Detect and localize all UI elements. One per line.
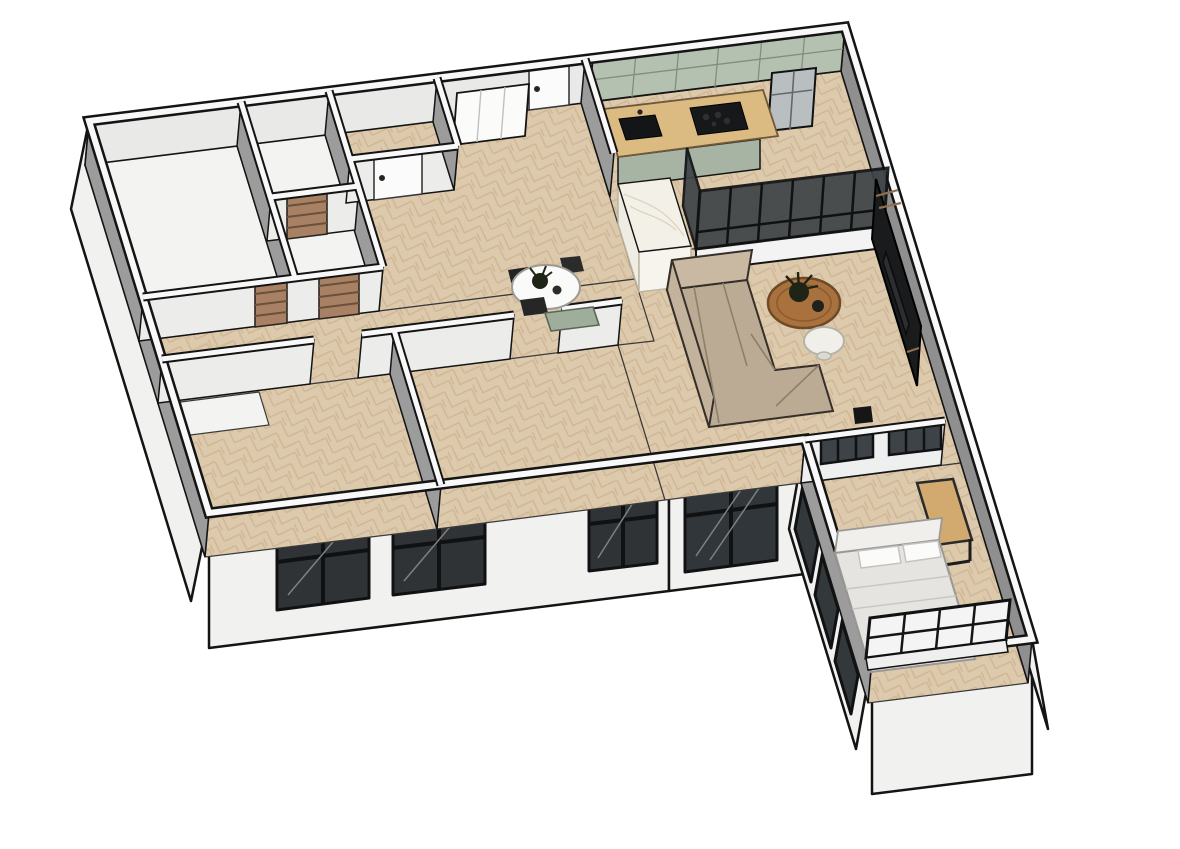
table-bowl (812, 300, 824, 312)
door-handle (380, 176, 384, 180)
cooktop (690, 102, 748, 135)
floorplan-3d-scene (0, 0, 1180, 849)
table-decor (553, 286, 562, 295)
dining-chair (520, 297, 548, 316)
entry-wardrobes (453, 84, 529, 145)
fridge (768, 68, 816, 131)
sink (619, 115, 662, 140)
side-table-base (817, 352, 831, 360)
floor-lamp (853, 406, 873, 424)
door-handle (535, 87, 539, 91)
white-side-table (804, 327, 844, 355)
floorplan-render-viewport: 3D isometric cutaway render of an L-shap… (0, 0, 1180, 849)
faucet (637, 109, 642, 114)
